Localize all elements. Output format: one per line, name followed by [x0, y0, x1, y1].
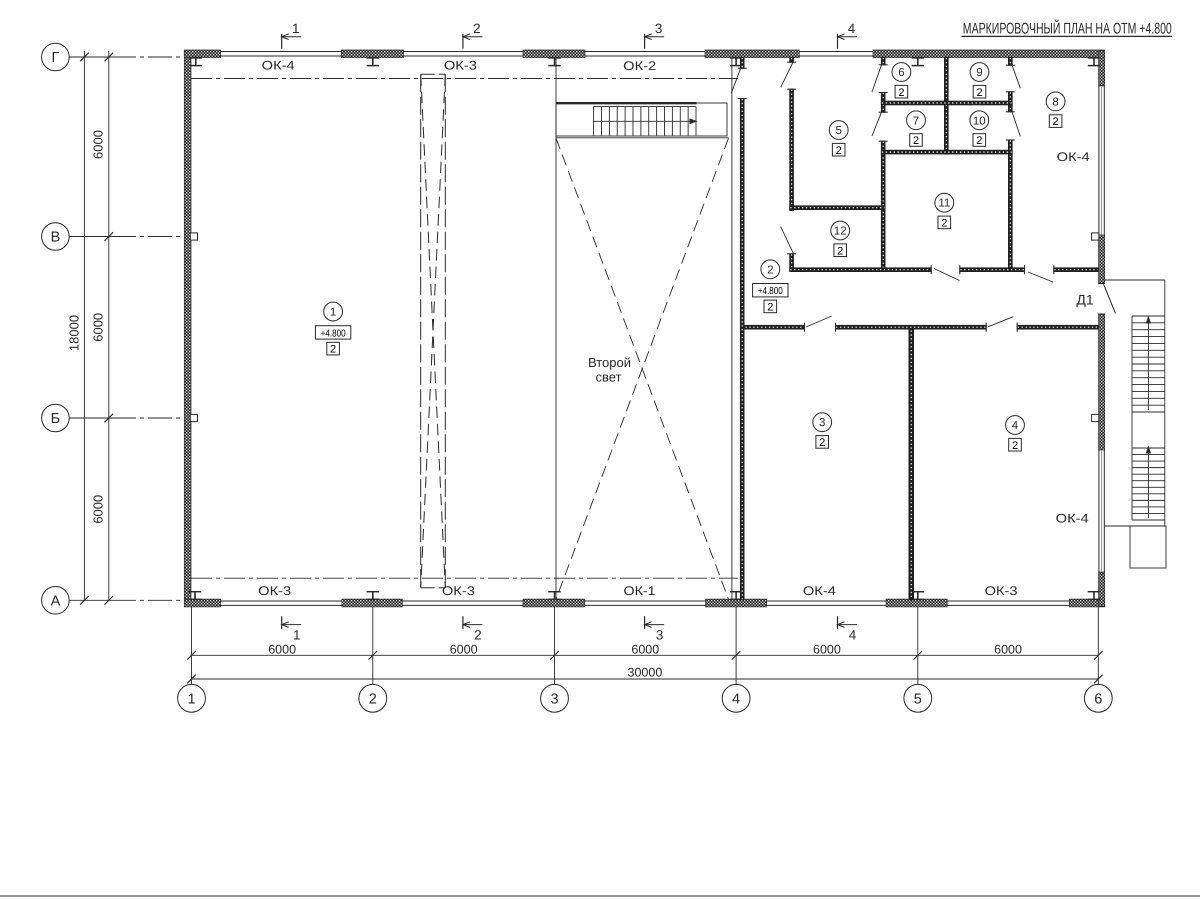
svg-text:9: 9 — [976, 67, 982, 79]
svg-text:1: 1 — [330, 307, 336, 319]
svg-text:5: 5 — [835, 125, 841, 137]
svg-text:6000: 6000 — [813, 642, 841, 656]
svg-text:В: В — [51, 230, 61, 246]
svg-text:2: 2 — [836, 145, 842, 157]
svg-text:6: 6 — [898, 67, 904, 79]
svg-text:3: 3 — [819, 417, 825, 429]
svg-text:ОК-4: ОК-4 — [262, 58, 295, 72]
svg-text:МАРКИРОВОЧНЫЙ ПЛАН НА ОТМ +4.8: МАРКИРОВОЧНЫЙ ПЛАН НА ОТМ +4.800 — [963, 19, 1172, 37]
svg-text:7: 7 — [913, 115, 919, 127]
svg-text:3: 3 — [550, 692, 558, 708]
svg-text:6000: 6000 — [91, 495, 106, 524]
svg-text:ОК-4: ОК-4 — [1057, 150, 1090, 164]
svg-text:2: 2 — [819, 437, 825, 449]
svg-text:2: 2 — [1053, 116, 1059, 128]
svg-text:2: 2 — [369, 692, 377, 708]
svg-text:ОК-4: ОК-4 — [803, 584, 836, 598]
svg-text:11: 11 — [938, 198, 950, 210]
svg-text:6000: 6000 — [91, 313, 106, 342]
svg-text:4: 4 — [732, 692, 740, 708]
svg-text:2: 2 — [473, 21, 481, 36]
svg-text:2: 2 — [837, 245, 843, 257]
svg-text:ОК-3: ОК-3 — [258, 584, 291, 598]
svg-text:12: 12 — [834, 226, 847, 238]
svg-text:ОК-3: ОК-3 — [985, 584, 1018, 598]
svg-text:Б: Б — [51, 411, 61, 427]
svg-text:2: 2 — [474, 628, 482, 643]
svg-text:А: А — [51, 594, 61, 610]
svg-text:6000: 6000 — [268, 642, 296, 656]
svg-text:2: 2 — [330, 344, 336, 356]
svg-text:1: 1 — [187, 692, 195, 708]
svg-text:5: 5 — [914, 692, 922, 708]
svg-text:30000: 30000 — [628, 665, 663, 679]
svg-text:2: 2 — [767, 302, 773, 314]
svg-text:ОК-1: ОК-1 — [624, 584, 656, 598]
svg-text:18000: 18000 — [67, 315, 82, 351]
svg-text:+4.800: +4.800 — [758, 286, 783, 297]
svg-text:2: 2 — [913, 135, 919, 147]
svg-text:Г: Г — [51, 50, 59, 66]
svg-text:8: 8 — [1052, 96, 1058, 108]
svg-text:6000: 6000 — [994, 642, 1022, 656]
svg-text:10: 10 — [973, 115, 986, 127]
svg-text:Второй: Второй — [588, 355, 631, 370]
svg-text:3: 3 — [655, 21, 663, 36]
svg-text:ОК-3: ОК-3 — [444, 58, 477, 72]
svg-text:6: 6 — [1094, 692, 1102, 708]
svg-text:Д1: Д1 — [1076, 291, 1093, 307]
svg-text:6000: 6000 — [91, 130, 106, 159]
svg-text:2: 2 — [767, 264, 773, 276]
svg-text:1: 1 — [293, 628, 301, 643]
svg-text:ОК-3: ОК-3 — [442, 584, 475, 598]
svg-text:2: 2 — [898, 87, 904, 99]
svg-text:ОК-2: ОК-2 — [623, 59, 656, 73]
svg-text:2: 2 — [1012, 440, 1018, 452]
svg-text:2: 2 — [976, 135, 982, 147]
svg-text:4: 4 — [848, 21, 856, 36]
svg-text:свет: свет — [595, 370, 621, 385]
svg-text:2: 2 — [976, 87, 982, 99]
svg-text:+4.800: +4.800 — [321, 328, 346, 339]
svg-text:6000: 6000 — [450, 642, 478, 656]
svg-text:6000: 6000 — [631, 642, 659, 656]
svg-text:ОК-4: ОК-4 — [1056, 512, 1089, 526]
svg-text:4: 4 — [849, 628, 857, 643]
svg-text:2: 2 — [941, 218, 947, 230]
svg-text:4: 4 — [1012, 420, 1019, 432]
svg-text:3: 3 — [656, 628, 664, 643]
svg-text:1: 1 — [292, 21, 300, 36]
